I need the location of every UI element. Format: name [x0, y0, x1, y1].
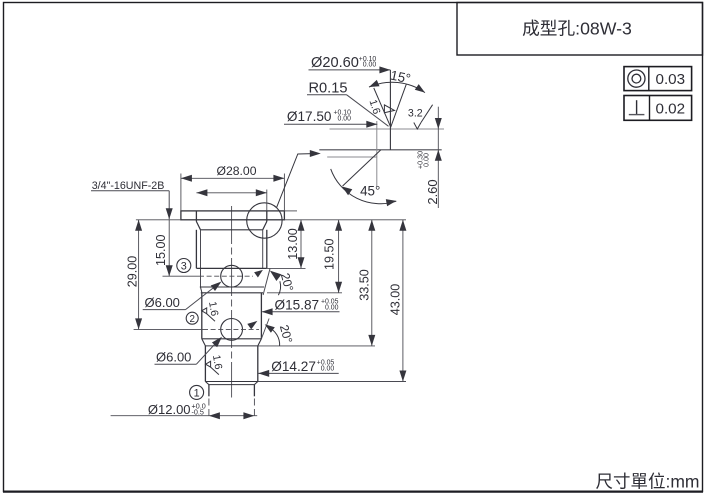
- svg-text:43.00: 43.00: [388, 284, 402, 316]
- svg-text:-0.5: -0.5: [192, 407, 204, 416]
- svg-text:0.00: 0.00: [338, 115, 352, 122]
- svg-text:Ø6.00: Ø6.00: [156, 350, 191, 365]
- svg-text:0.00: 0.00: [363, 62, 377, 69]
- svg-text:0.00: 0.00: [325, 305, 339, 312]
- svg-text:Ø20.60: Ø20.60: [311, 55, 359, 71]
- svg-text:Ø15.87: Ø15.87: [275, 298, 320, 313]
- svg-text:3: 3: [181, 260, 187, 272]
- svg-text:2: 2: [189, 314, 194, 325]
- svg-text:1.6: 1.6: [210, 354, 224, 371]
- svg-text:尺寸單位:mm: 尺寸單位:mm: [595, 472, 699, 492]
- svg-text:Ø12.00: Ø12.00: [148, 402, 191, 417]
- svg-text:R0.15: R0.15: [309, 80, 348, 96]
- svg-text:2.60: 2.60: [425, 179, 440, 204]
- svg-text:Ø17.50: Ø17.50: [287, 109, 332, 124]
- svg-text:Ø28.00: Ø28.00: [217, 164, 257, 178]
- svg-text:Ø14.27: Ø14.27: [271, 359, 316, 374]
- svg-text:0.03: 0.03: [656, 71, 686, 88]
- svg-text:13.00: 13.00: [286, 228, 300, 260]
- svg-text:3/4"-16UNF-2B: 3/4"-16UNF-2B: [92, 180, 165, 192]
- svg-text:45°: 45°: [360, 183, 380, 198]
- svg-text:0.00: 0.00: [422, 153, 431, 167]
- svg-text:Ø6.00: Ø6.00: [145, 295, 180, 310]
- svg-text:29.00: 29.00: [126, 256, 140, 288]
- svg-text:1.6: 1.6: [206, 301, 220, 318]
- svg-text:3.2: 3.2: [408, 108, 423, 120]
- svg-text:0.02: 0.02: [656, 101, 686, 118]
- svg-text:33.50: 33.50: [357, 269, 371, 301]
- svg-text:0.00: 0.00: [321, 366, 335, 373]
- svg-text:成型孔:08W-3: 成型孔:08W-3: [522, 19, 632, 39]
- svg-text:19.50: 19.50: [323, 239, 337, 271]
- svg-text:1: 1: [194, 387, 200, 399]
- svg-text:15.00: 15.00: [154, 235, 168, 267]
